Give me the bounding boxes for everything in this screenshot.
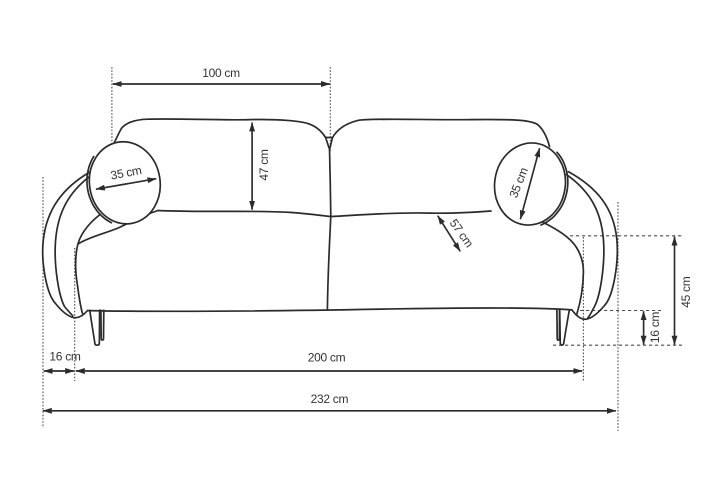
svg-text:45 cm: 45 cm — [679, 276, 693, 307]
svg-text:16 cm: 16 cm — [49, 350, 80, 364]
svg-text:57 cm: 57 cm — [447, 216, 477, 250]
svg-text:100 cm: 100 cm — [202, 66, 240, 80]
svg-text:200 cm: 200 cm — [308, 351, 346, 365]
svg-text:232 cm: 232 cm — [311, 392, 349, 406]
svg-text:16 cm: 16 cm — [648, 312, 662, 343]
svg-text:47 cm: 47 cm — [257, 149, 271, 180]
